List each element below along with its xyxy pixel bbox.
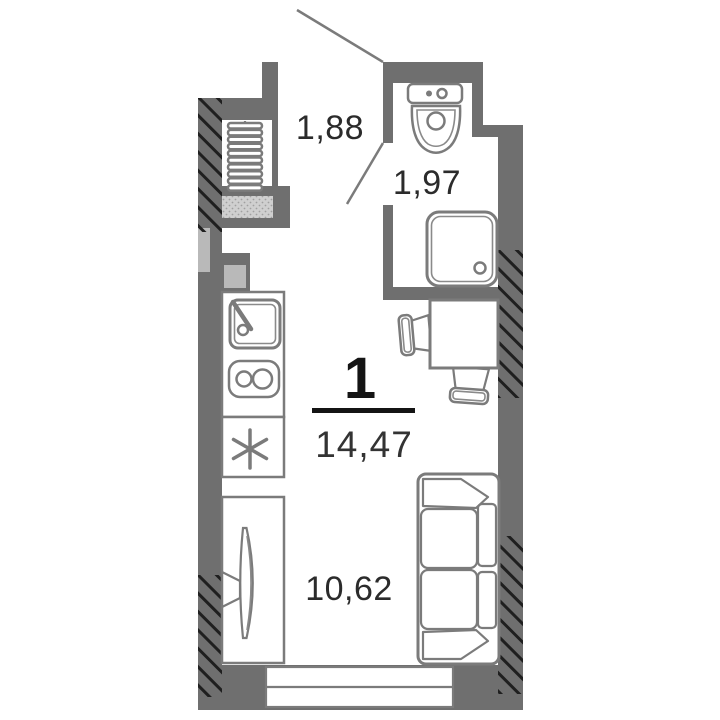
entry-door-swing-icon <box>297 10 383 62</box>
bathroom-bottom-wall <box>383 287 498 300</box>
hatch-segment <box>198 575 222 697</box>
kitchen-sink-icon <box>230 300 280 348</box>
stipple-panel <box>222 196 273 218</box>
shower-icon <box>427 212 497 286</box>
hatch-segment <box>498 250 523 398</box>
entry-wall-stub <box>262 62 278 98</box>
bathroom-area-label: 1,97 <box>393 164 461 202</box>
bathroom-left-wall-upper <box>383 83 393 143</box>
wardrobe-hangers-icon <box>228 121 262 192</box>
window-icon <box>266 667 453 707</box>
chair-icon <box>398 313 431 355</box>
bathroom-left-wall-lower <box>383 205 393 300</box>
dining-table-icon <box>430 300 498 368</box>
floor-plan: 1,88 1,97 10,62 1 14,47 <box>0 0 720 720</box>
hatch-segment <box>498 536 523 694</box>
hall-area-label: 1,88 <box>296 109 364 147</box>
sofa-icon <box>418 474 499 664</box>
wardrobe-right-wall <box>272 120 278 193</box>
ventilation-duct-icon <box>224 265 246 288</box>
chair-icon <box>450 367 490 405</box>
floor-plan-canvas: 1,88 1,97 10,62 1 14,47 <box>0 0 720 720</box>
stove-icon <box>229 361 279 397</box>
wall-segment <box>273 196 290 218</box>
total-area-label: 14,47 <box>315 424 413 465</box>
toilet-icon <box>408 84 462 153</box>
bathroom-top-wall <box>383 62 483 83</box>
label-divider <box>312 408 415 413</box>
bathroom-door-swing-icon <box>347 143 383 204</box>
hatch-segment <box>198 98 222 232</box>
living-area-label: 10,62 <box>305 570 393 608</box>
wardrobe-top-wall <box>222 98 278 120</box>
rooms-count-label: 1 <box>344 346 376 411</box>
wall-insert-panel <box>198 228 210 272</box>
